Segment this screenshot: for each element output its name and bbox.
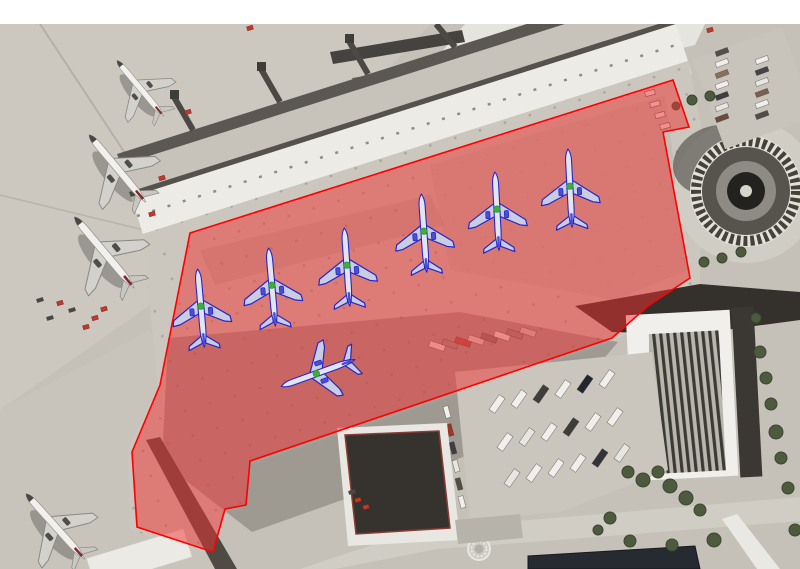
tree [717,253,727,263]
tree [593,525,603,535]
tree [789,524,800,536]
tree [699,257,709,267]
tree [782,482,794,494]
tree [694,504,706,516]
tree [604,512,616,524]
tree [775,452,787,464]
top-white-margin [0,0,800,24]
tree [624,535,636,547]
tree [663,479,677,493]
tree [666,539,678,551]
tree [754,346,766,358]
tree [765,398,777,410]
tree [652,466,664,478]
tree [736,247,746,257]
tree [622,466,634,478]
aerial-photo[interactable] [0,24,800,569]
tree [687,95,697,105]
tree [636,473,650,487]
tree [751,313,761,323]
tree [705,91,715,101]
tree [760,372,772,384]
tree [769,425,783,439]
tree [679,491,693,505]
tree [707,533,721,547]
map-canvas [0,0,800,569]
